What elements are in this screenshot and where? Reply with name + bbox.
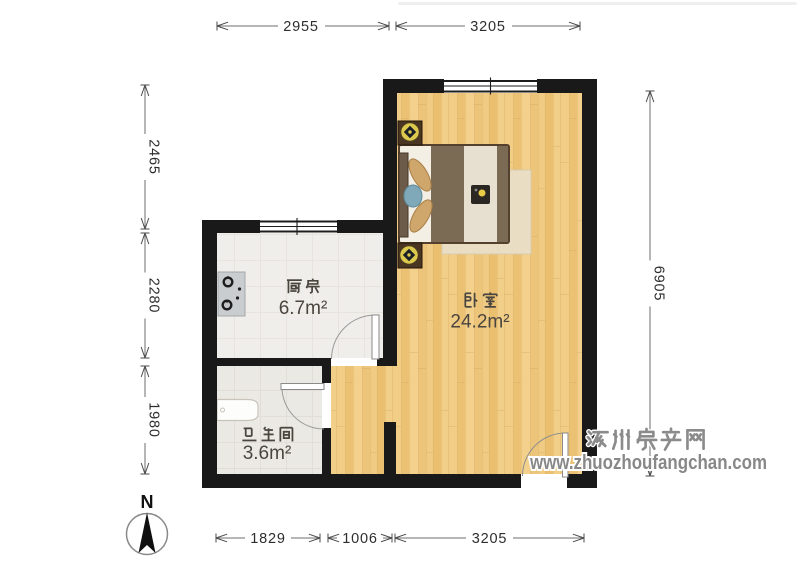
svg-text:3205: 3205: [470, 19, 505, 35]
svg-text:N: N: [141, 492, 154, 512]
svg-text:2465: 2465: [146, 139, 162, 174]
svg-text:2280: 2280: [146, 278, 162, 313]
svg-text:6.7m²: 6.7m²: [279, 298, 328, 319]
svg-text:1980: 1980: [146, 402, 162, 437]
svg-text:24.2m²: 24.2m²: [450, 312, 509, 333]
svg-text:6905: 6905: [651, 266, 667, 301]
svg-text:1006: 1006: [342, 531, 377, 547]
svg-text:3.6m²: 3.6m²: [243, 443, 292, 464]
svg-text:1829: 1829: [250, 531, 285, 547]
svg-text:www.zhuozhoufangchan.com: www.zhuozhoufangchan.com: [529, 452, 767, 474]
svg-text:2955: 2955: [283, 19, 318, 35]
svg-text:3205: 3205: [472, 531, 507, 547]
